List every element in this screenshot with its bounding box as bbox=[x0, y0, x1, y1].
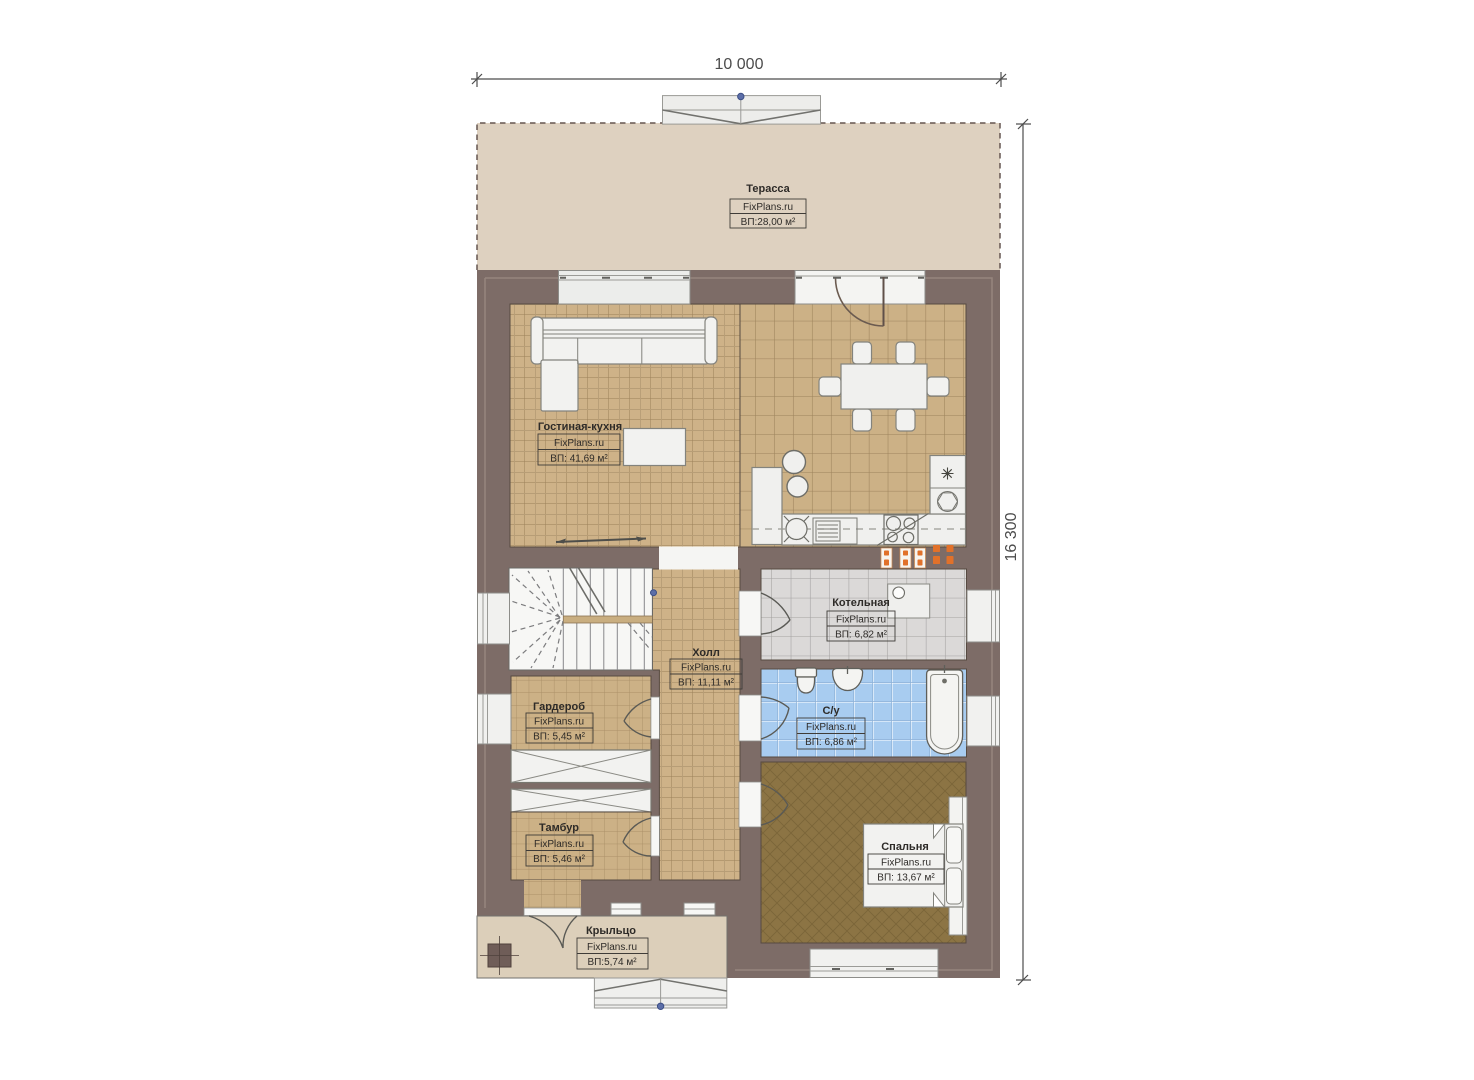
svg-text:Терасса: Терасса bbox=[746, 183, 790, 195]
svg-text:FixPlans.ru: FixPlans.ru bbox=[806, 722, 856, 733]
svg-text:ВП: 41,69 м²: ВП: 41,69 м² bbox=[550, 454, 608, 465]
svg-text:ВП: 13,67 м²: ВП: 13,67 м² bbox=[877, 873, 935, 884]
svg-text:10 000: 10 000 bbox=[715, 56, 764, 73]
svg-text:FixPlans.ru: FixPlans.ru bbox=[587, 942, 637, 953]
svg-text:Спальня: Спальня bbox=[881, 841, 929, 853]
svg-text:FixPlans.ru: FixPlans.ru bbox=[534, 717, 584, 728]
svg-text:ВП:28,00 м²: ВП:28,00 м² bbox=[741, 217, 796, 228]
svg-text:FixPlans.ru: FixPlans.ru bbox=[743, 202, 793, 213]
svg-text:ВП: 6,86 м²: ВП: 6,86 м² bbox=[805, 737, 858, 748]
svg-text:С/у: С/у bbox=[822, 705, 840, 717]
svg-text:Котельная: Котельная bbox=[832, 597, 890, 609]
svg-text:ВП:5,74 м²: ВП:5,74 м² bbox=[587, 957, 637, 968]
svg-text:Гостиная-кухня: Гостиная-кухня bbox=[538, 421, 622, 433]
svg-text:FixPlans.ru: FixPlans.ru bbox=[681, 663, 731, 674]
svg-text:FixPlans.ru: FixPlans.ru bbox=[836, 615, 886, 626]
svg-text:Тамбур: Тамбур bbox=[539, 822, 579, 834]
svg-text:FixPlans.ru: FixPlans.ru bbox=[534, 839, 584, 850]
svg-text:ВП: 11,11 м²: ВП: 11,11 м² bbox=[678, 678, 735, 689]
svg-text:FixPlans.ru: FixPlans.ru bbox=[881, 858, 931, 869]
svg-text:FixPlans.ru: FixPlans.ru bbox=[554, 438, 604, 449]
svg-text:Крыльцо: Крыльцо bbox=[586, 925, 636, 937]
svg-text:ВП: 5,46 м²: ВП: 5,46 м² bbox=[533, 854, 586, 865]
svg-text:Гардероб: Гардероб bbox=[533, 701, 585, 713]
svg-text:16 300: 16 300 bbox=[1003, 512, 1020, 561]
svg-text:ВП: 5,45 м²: ВП: 5,45 м² bbox=[533, 732, 586, 743]
svg-text:Холл: Холл bbox=[692, 647, 720, 659]
svg-text:ВП: 6,82 м²: ВП: 6,82 м² bbox=[835, 630, 888, 641]
